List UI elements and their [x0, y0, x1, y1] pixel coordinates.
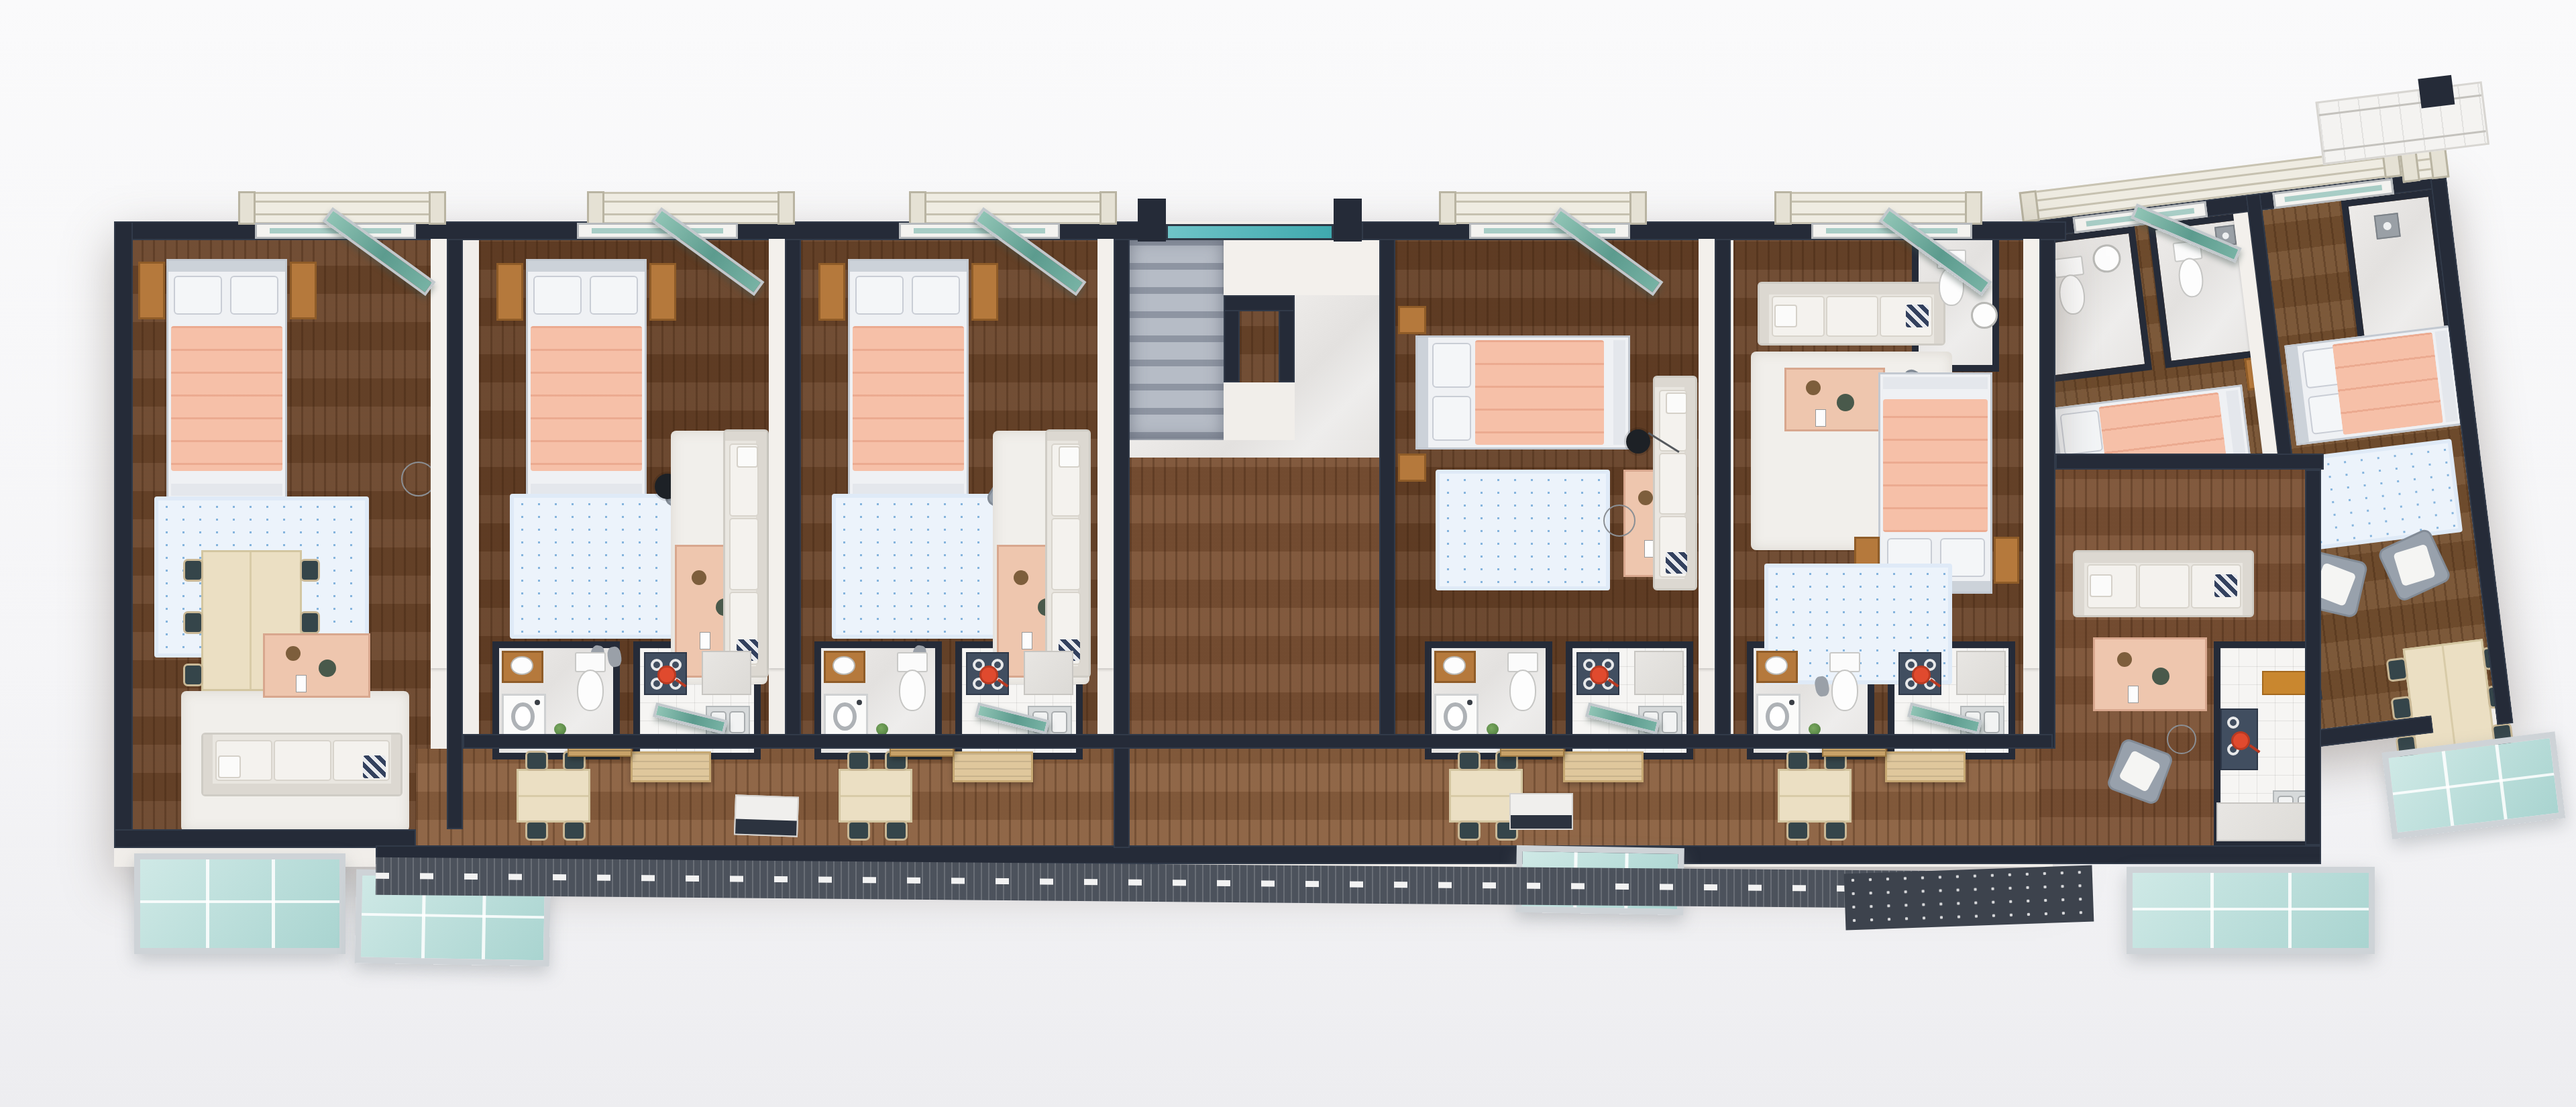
cornice-cap [238, 191, 256, 225]
chair [2385, 657, 2408, 682]
deck-mullion [2393, 772, 2555, 794]
chair [525, 751, 548, 771]
headboard [850, 261, 967, 272]
tray-item [692, 570, 706, 585]
sofa [1653, 376, 1697, 590]
sofa-arm [1655, 579, 1695, 588]
bed [848, 259, 969, 500]
vanity-basin [833, 656, 855, 675]
headboard [528, 261, 645, 272]
entry-mat [631, 751, 711, 782]
sofa [723, 429, 769, 678]
pendant-lamp [1603, 505, 1635, 537]
washer-knob [1467, 700, 1472, 705]
unit1-bottom-wall [114, 829, 416, 848]
cornice-line [1786, 201, 1970, 203]
cornice-cap [2019, 190, 2039, 223]
stove [1898, 652, 1941, 695]
counter [1956, 651, 2006, 695]
nightstand [1398, 306, 1426, 334]
counter [702, 651, 751, 695]
nightstand [818, 263, 845, 321]
bath-vanity [502, 651, 543, 683]
pillow [1432, 396, 1471, 441]
nightstand [138, 262, 165, 319]
cornice-line [1451, 213, 1635, 215]
sink-bowl [1051, 711, 1067, 733]
washer-door [1444, 702, 1467, 731]
sofa-pillow-navy [363, 755, 386, 778]
pillow [174, 276, 222, 315]
coffee-table [1784, 368, 1885, 431]
nightstand [1994, 537, 2019, 584]
bath-vanity [1434, 651, 1476, 683]
cornice-line [921, 213, 1105, 215]
sofa-arm [1760, 284, 1769, 344]
bench-front [735, 819, 797, 836]
chair [183, 559, 203, 582]
sofa-arm [725, 431, 767, 441]
sofa-arm [1655, 378, 1695, 387]
stove [1576, 652, 1619, 695]
tray-item [2117, 652, 2132, 667]
sofa-arm [391, 735, 400, 794]
balcony-glass [134, 853, 345, 954]
sofa-back [2075, 552, 2252, 563]
chair [1786, 751, 1809, 771]
tray-item [1638, 490, 1653, 505]
cornice-line [599, 213, 783, 215]
cornice-line [921, 201, 1105, 203]
walkway-cap [2418, 75, 2455, 109]
bed-foot [171, 484, 282, 496]
sofa-pillow [1059, 446, 1080, 468]
window [1469, 223, 1630, 239]
entry-mat [953, 751, 1033, 782]
stair-core-wall-top [1224, 295, 1295, 311]
pillow [2059, 410, 2103, 456]
headboard [1417, 337, 1428, 447]
cornice-line [1786, 213, 1970, 215]
chair [1458, 751, 1481, 771]
chair [1786, 821, 1809, 841]
pot [657, 666, 676, 684]
lobby-floor [1130, 458, 1379, 749]
entry-mat [1885, 751, 1966, 782]
sofa-arm [203, 735, 213, 794]
counter [1024, 651, 1073, 695]
washer-door [1766, 702, 1789, 731]
bath-vanity [824, 651, 865, 683]
pillow [1432, 343, 1471, 388]
sofa-cushion [274, 740, 331, 781]
corridor-bench [734, 794, 799, 837]
sofa [2073, 550, 2254, 617]
pot [2231, 731, 2250, 750]
washer-door [833, 702, 857, 731]
counter [1634, 651, 1684, 695]
washer-knob [857, 700, 862, 705]
armchair-pillow [2394, 544, 2436, 586]
headboard [168, 261, 285, 272]
sofa-pillow [218, 755, 241, 778]
toilet [895, 652, 930, 711]
nightstand [290, 262, 317, 319]
stair-porch-pillar [1334, 199, 1362, 242]
partition [431, 239, 447, 668]
living-right-wall [2305, 470, 2321, 845]
toilet-bowl [1831, 670, 1858, 711]
cornice-cap [1774, 191, 1792, 225]
deck-mullion [2288, 873, 2292, 948]
sofa [201, 733, 402, 796]
bath-vanity [1756, 651, 1798, 683]
bed-foot [1613, 340, 1625, 445]
deck-rail [2319, 94, 2482, 116]
glazing [914, 228, 1046, 233]
partition [1699, 239, 1715, 668]
chair [847, 821, 870, 841]
bench-front [1511, 815, 1572, 829]
window-cornice [590, 192, 792, 224]
sofa-arm [2243, 552, 2252, 615]
washer-knob [535, 700, 540, 705]
sofa-pillow [737, 446, 758, 468]
phone [2128, 686, 2139, 703]
chair [563, 821, 586, 841]
bed [1878, 372, 1992, 594]
chair [525, 821, 548, 841]
corridor-top-wall [463, 734, 2053, 749]
coffee-table [263, 633, 370, 698]
stair-wall-right [1379, 239, 1395, 749]
stair-threshold [1130, 440, 1379, 458]
coffee-table [2093, 637, 2207, 711]
divider-wall [447, 239, 463, 829]
pillow [230, 276, 278, 315]
tray-item [1837, 394, 1854, 411]
toilet-bowl [2176, 256, 2205, 299]
dining-table [517, 769, 590, 823]
sofa-cushion [729, 518, 759, 591]
sofa-pillow-navy [1906, 305, 1929, 327]
duvet [1475, 340, 1604, 445]
stair-core-pocket [1240, 311, 1279, 382]
sofa [1045, 429, 1091, 678]
shower-head [2374, 213, 2401, 240]
pot [1912, 666, 1931, 684]
stair-wall-left [1114, 239, 1130, 848]
cornice-cap [1965, 191, 1982, 225]
nightstand [1398, 454, 1426, 482]
cornice-line [599, 201, 783, 203]
cornice-cap [777, 191, 795, 225]
stair-flight [1130, 239, 1224, 440]
chair [1458, 821, 1481, 841]
sofa-arm [1047, 431, 1089, 441]
dining-table [839, 769, 912, 823]
duvet [531, 326, 642, 471]
burner [2227, 717, 2239, 729]
cornice-cap [1099, 191, 1117, 225]
vanity-basin [511, 656, 533, 675]
grate-markings [376, 873, 1945, 892]
floor-plan-render [0, 0, 2576, 1107]
floor-lamp [1626, 429, 1650, 454]
sofa-arm [2075, 552, 2084, 615]
cornice-cap [587, 191, 604, 225]
pillow [590, 276, 638, 315]
sofa-back [1760, 284, 1943, 295]
toilet-bowl [577, 670, 604, 711]
stair-landing [1224, 239, 1379, 295]
cornice-cap [909, 191, 926, 225]
living-right-top-wall [2055, 454, 2324, 470]
toilet [1827, 652, 1862, 711]
toilet-bowl [2057, 273, 2087, 316]
sofa-pillow-navy [2214, 574, 2237, 597]
deck-mullion [2133, 908, 2369, 910]
phone [1815, 409, 1826, 427]
chair [183, 664, 203, 686]
tray-item [319, 660, 336, 677]
basin [1971, 302, 1998, 329]
window-cornice [912, 192, 1114, 224]
tray-item [1806, 380, 1821, 395]
pot [1590, 666, 1609, 684]
blue-rug [1436, 470, 1610, 590]
deck-rail [2323, 130, 2486, 152]
tray-item [1014, 570, 1028, 585]
nightstand [649, 263, 676, 321]
window-cornice [1442, 192, 1644, 224]
stove [644, 652, 687, 695]
walkway-ramp [1844, 865, 2094, 931]
phone [1022, 632, 1032, 649]
entry-mat [1563, 751, 1644, 782]
chair [300, 559, 320, 582]
table-seam [1780, 795, 1849, 797]
duvet [853, 326, 964, 471]
cornice-line [1451, 201, 1635, 203]
toilet [1505, 652, 1540, 711]
sofa-cushion [1051, 518, 1081, 591]
deck-mullion [362, 913, 544, 919]
pillow [533, 276, 582, 315]
chair [885, 821, 908, 841]
chair [1824, 821, 1847, 841]
counter [2216, 802, 2318, 841]
bed-foot [1883, 377, 1988, 389]
toilet [2051, 255, 2091, 316]
sofa-pillow-navy [1666, 552, 1687, 574]
chair [183, 611, 203, 634]
chair [847, 751, 870, 771]
sofa-cushion [1826, 296, 1879, 337]
sofa [1758, 282, 1945, 346]
table-seam [250, 552, 252, 689]
phone [700, 632, 710, 649]
vanity-basin [1765, 656, 1788, 675]
chair [300, 611, 320, 634]
deck-mullion [206, 859, 209, 948]
table-seam [519, 795, 588, 797]
nightstand [971, 263, 998, 321]
stair-porch-pillar [1138, 199, 1166, 242]
deck-mullion [140, 900, 339, 903]
sofa-pillow [2090, 574, 2112, 597]
bed [1415, 335, 1630, 450]
divider-wall [785, 239, 801, 749]
tray-item [286, 646, 301, 661]
nightstand [496, 263, 523, 321]
toilet-bowl [1509, 670, 1536, 711]
shower-rose [2383, 221, 2392, 231]
divider-wall [2039, 239, 2055, 749]
bed [526, 259, 647, 500]
toilet [573, 652, 608, 711]
window-cornice [1778, 192, 1979, 224]
divider-wall [1715, 239, 1731, 749]
pillow [912, 276, 960, 315]
shower-rose [2222, 232, 2230, 240]
partition [2023, 239, 2039, 668]
duvet [171, 326, 282, 471]
partition [769, 239, 785, 668]
sink-bowl [729, 711, 745, 733]
table-seam [2441, 645, 2457, 755]
balcony-glass [2127, 867, 2375, 954]
table-seam [841, 795, 910, 797]
outer-wall-left [114, 221, 133, 848]
sink-bowl [1662, 711, 1678, 733]
bed [166, 259, 287, 500]
toilet-bowl [899, 670, 926, 711]
deck-mullion [272, 859, 275, 948]
washer-knob [1789, 700, 1794, 705]
stove [966, 652, 1009, 695]
partition [1097, 239, 1114, 668]
tray-item [2152, 668, 2169, 685]
roof-walkway [2315, 81, 2489, 165]
cornice-line [250, 201, 434, 203]
dining-table [1778, 769, 1851, 823]
sofa-back [203, 784, 400, 794]
sofa-cushion [1659, 453, 1687, 515]
vanity-basin [1443, 656, 1466, 675]
pendant-lamp [2167, 725, 2196, 754]
armchair-pillow [2118, 750, 2161, 793]
chair [2391, 696, 2414, 721]
bed [2284, 325, 2463, 445]
duvet [2332, 332, 2443, 435]
cornice-cap [1439, 191, 1456, 225]
pillow [855, 276, 904, 315]
sink-bowl [1984, 711, 2000, 733]
washer-door [511, 702, 535, 731]
duvet [1883, 399, 1988, 532]
deck-mullion [2210, 873, 2214, 948]
stair-skylight [1166, 224, 1334, 240]
glazing [592, 228, 724, 233]
sofa-pillow [1774, 305, 1797, 327]
corridor-bench [1509, 793, 1573, 830]
stair-mid-landing [1295, 295, 1379, 440]
sofa-cushion [2139, 564, 2189, 609]
phone [296, 675, 307, 692]
pot [979, 666, 998, 684]
cornice-cap [1629, 191, 1647, 225]
sofa-pillow [1666, 392, 1687, 414]
cornice-cap [429, 191, 446, 225]
stove [2220, 708, 2258, 770]
